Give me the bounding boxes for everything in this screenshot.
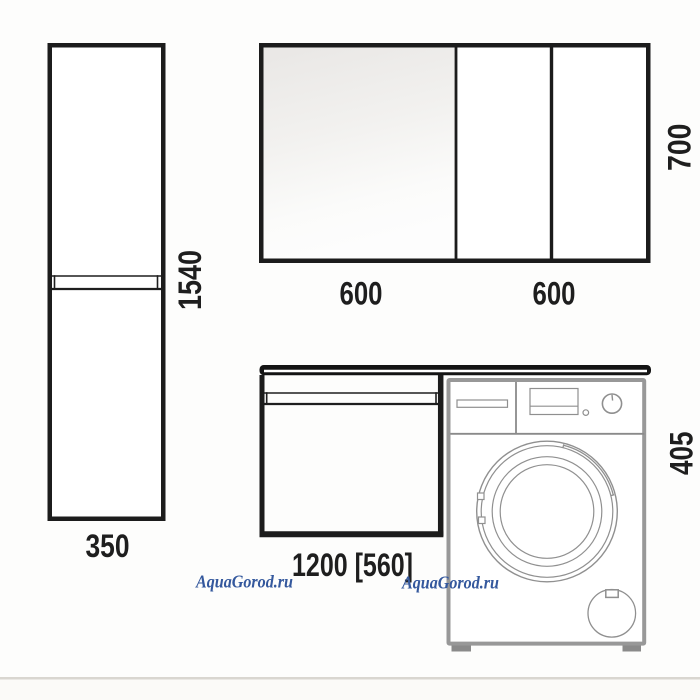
svg-text:700: 700: [662, 124, 698, 172]
svg-text:AquaGorod.ru: AquaGorod.ru: [195, 572, 293, 592]
svg-text:AquaGorod.ru: AquaGorod.ru: [401, 573, 499, 593]
svg-text:1540: 1540: [172, 250, 208, 310]
svg-text:405: 405: [664, 432, 700, 476]
svg-text:600: 600: [340, 276, 383, 312]
svg-text:350: 350: [86, 528, 130, 564]
svg-text:600: 600: [533, 276, 576, 312]
svg-text:1200 [560]: 1200 [560]: [292, 547, 413, 583]
